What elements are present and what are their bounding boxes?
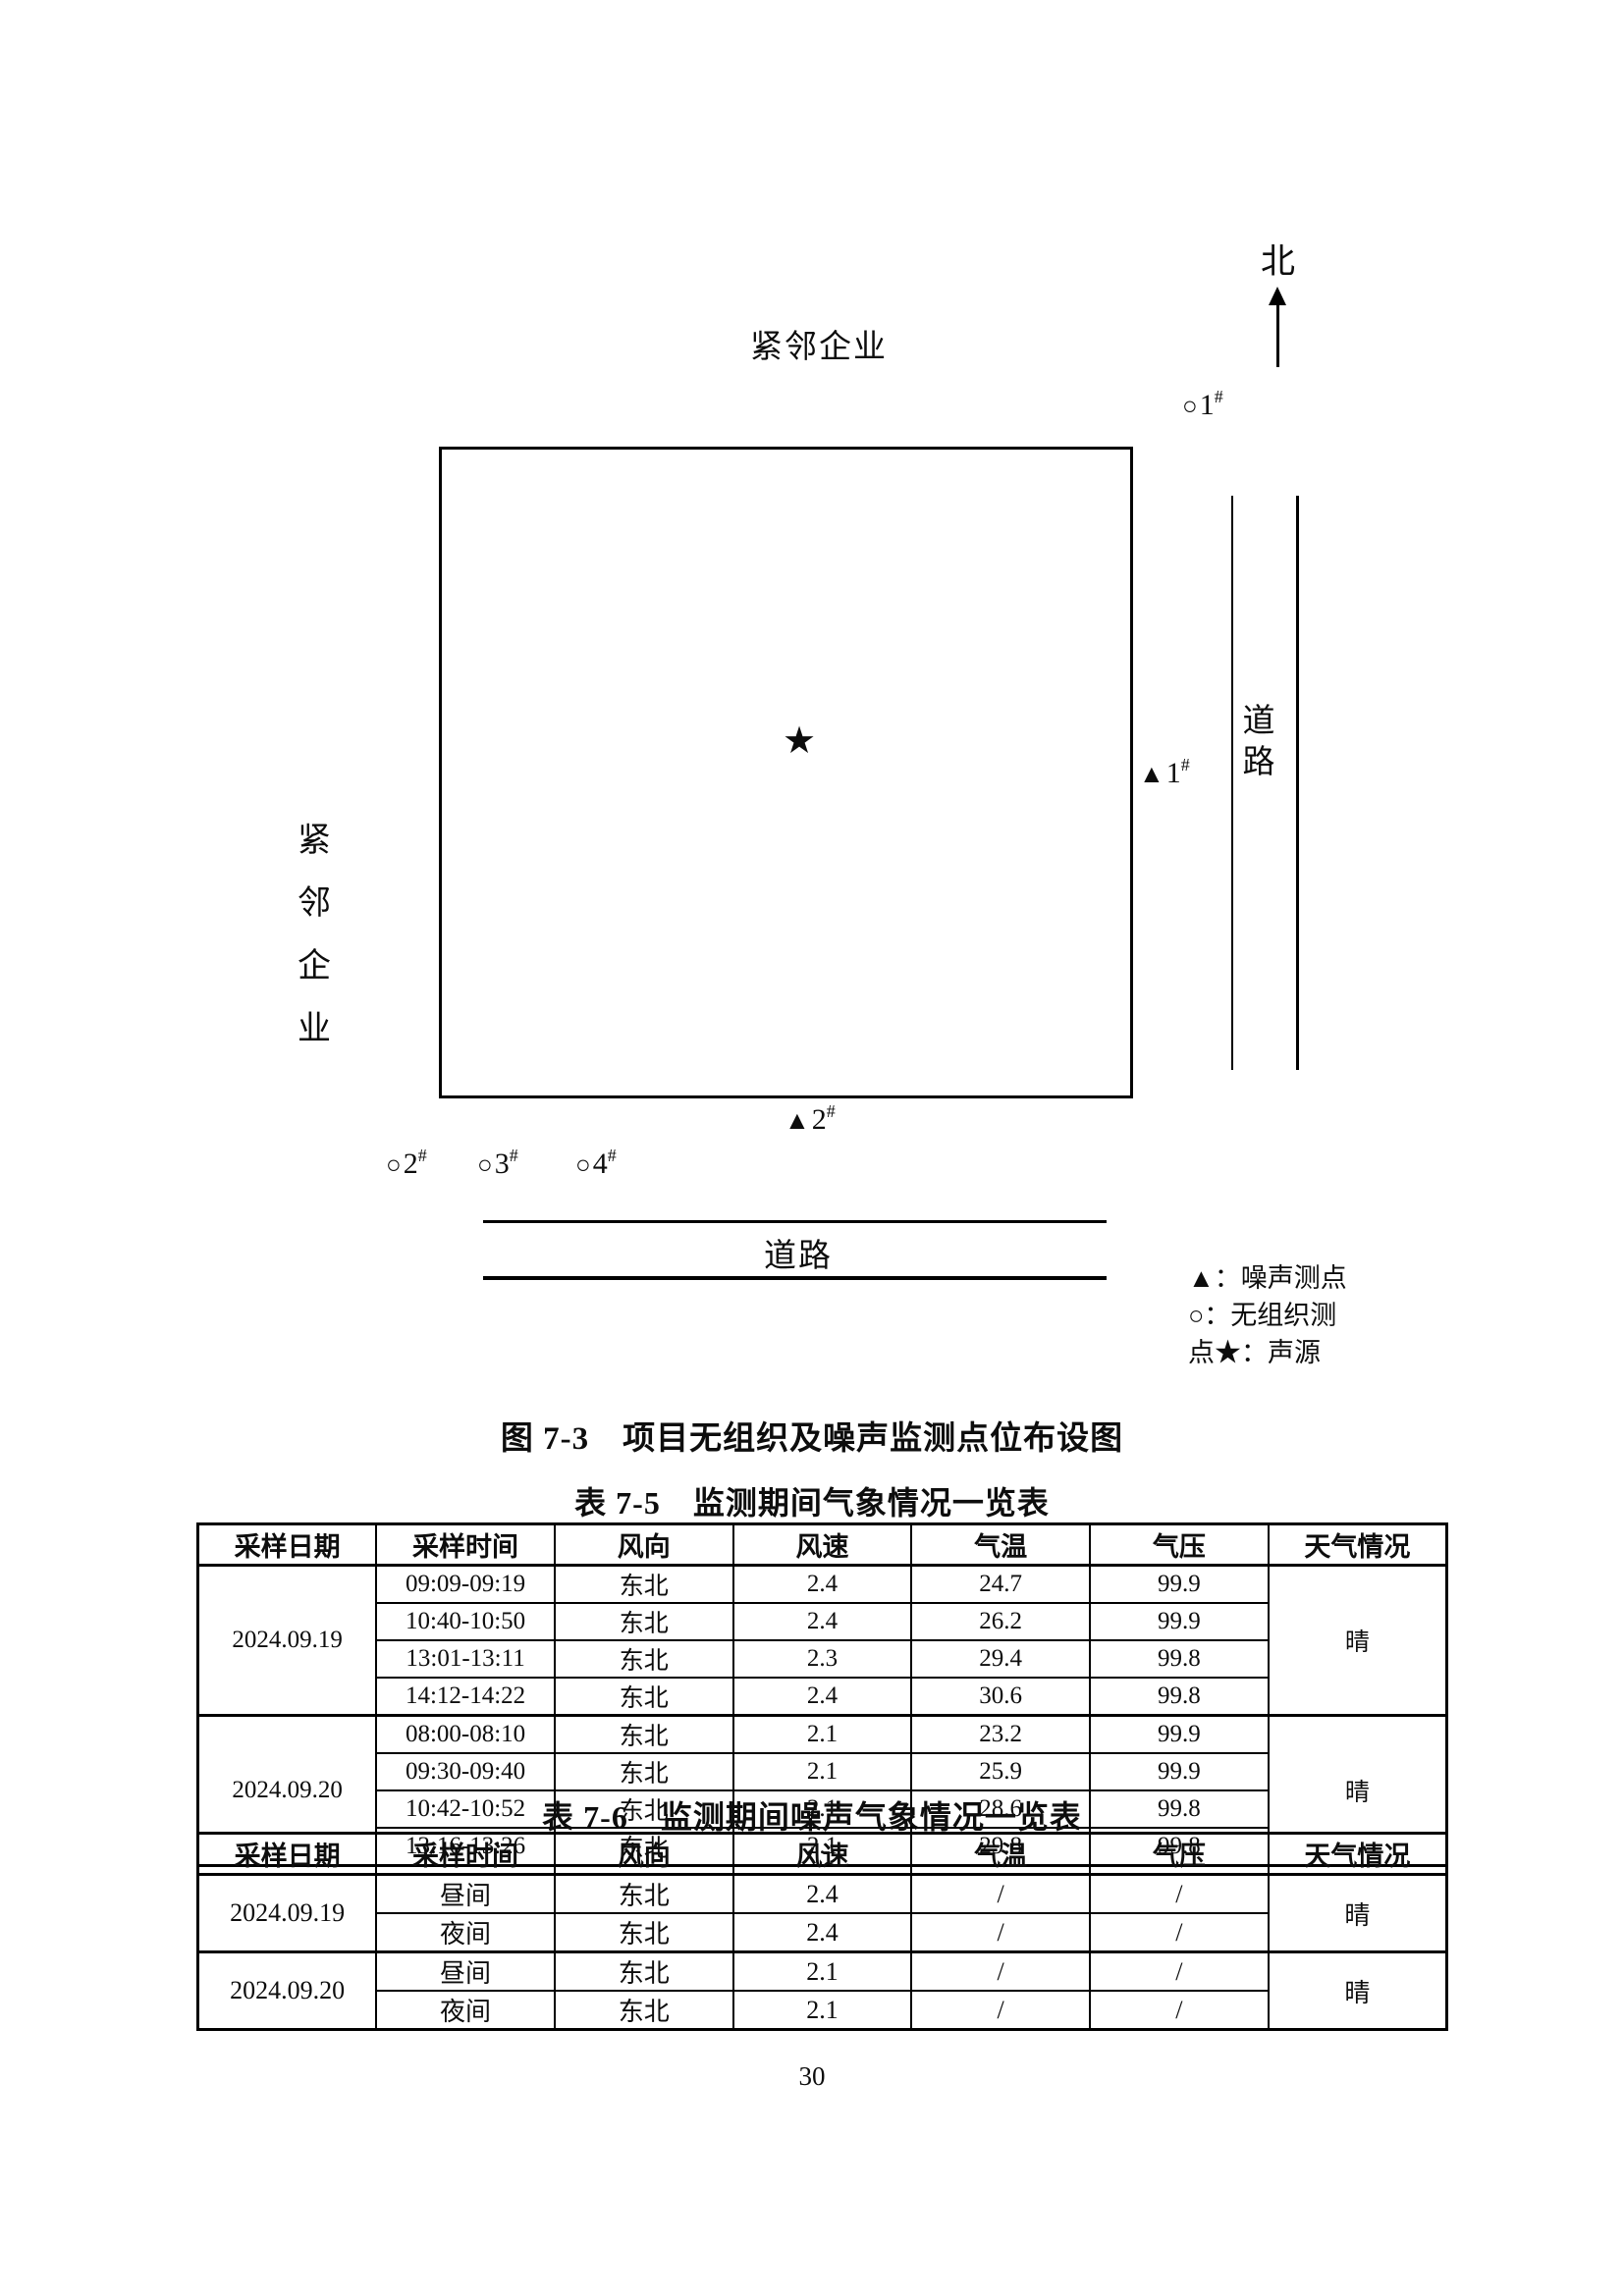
header-cell: 气压 — [1090, 1834, 1269, 1875]
table-cell: 东北 — [555, 1678, 733, 1716]
date-cell: 2024.09.20 — [198, 1952, 377, 2030]
table-cell: / — [1090, 1952, 1269, 1992]
table-cell: 10:40-10:50 — [376, 1603, 555, 1640]
table-row: 14:12-14:22东北2.430.699.8 — [198, 1678, 1447, 1716]
header-cell: 采样时间 — [376, 1524, 555, 1566]
circle-icon: ○ — [575, 1150, 591, 1179]
legend-unorganized-point: ○：无组织测 — [1188, 1297, 1347, 1334]
table-cell: 东北 — [555, 1716, 733, 1754]
table-cell: 东北 — [555, 1913, 733, 1952]
right-road-line-1 — [1231, 496, 1233, 1070]
table-cell: / — [1090, 1913, 1269, 1952]
table-row: 2024.09.20昼间东北2.1//晴 — [198, 1952, 1447, 1992]
table-row: 13:01-13:11东北2.329.499.8 — [198, 1640, 1447, 1678]
bottom-road-line-2 — [483, 1276, 1107, 1280]
header-cell: 风速 — [733, 1834, 912, 1875]
unorganized-point-1: ○1# — [1182, 390, 1223, 424]
circle-icon: ○ — [1182, 392, 1198, 420]
page-number: 30 — [0, 2061, 1624, 2092]
table-cell: 昼间 — [376, 1952, 555, 1992]
table-cell: 25.9 — [911, 1753, 1090, 1790]
header-cell: 气温 — [911, 1524, 1090, 1566]
table-row: 2024.09.19昼间东北2.4//晴 — [198, 1875, 1447, 1914]
weather-cell: 晴 — [1269, 1566, 1447, 1716]
circle-icon: ○ — [386, 1150, 402, 1179]
triangle-icon: ▲ — [1139, 760, 1164, 788]
header-cell: 采样时间 — [376, 1834, 555, 1875]
table-cell: 2.4 — [733, 1678, 912, 1716]
table-row: 2024.09.1909:09-09:19东北2.424.799.9晴 — [198, 1566, 1447, 1604]
table-cell: 昼间 — [376, 1875, 555, 1914]
noise-point-2: ▲2# — [785, 1104, 836, 1139]
header-cell: 风向 — [555, 1524, 733, 1566]
date-cell: 2024.09.19 — [198, 1875, 377, 1952]
table-cell: 09:30-09:40 — [376, 1753, 555, 1790]
marker-superscript: # — [608, 1146, 617, 1165]
table-row: 09:30-09:40东北2.125.999.9 — [198, 1753, 1447, 1790]
weather-cell: 晴 — [1269, 1875, 1447, 1952]
unorganized-point-4: ○4# — [575, 1148, 617, 1183]
marker-number: 2 — [810, 1103, 827, 1136]
marker-superscript: # — [418, 1146, 427, 1165]
triangle-icon: ▲ — [785, 1106, 810, 1135]
unorganized-point-2: ○2# — [386, 1148, 427, 1183]
table-cell: 26.2 — [911, 1603, 1090, 1640]
table-cell: 99.9 — [1090, 1716, 1269, 1754]
legend-source: 点★：声源 — [1188, 1334, 1347, 1371]
table-row: 夜间东北2.4// — [198, 1913, 1447, 1952]
table-cell: 14:12-14:22 — [376, 1678, 555, 1716]
north-arrow-shaft — [1276, 303, 1279, 367]
header-cell: 采样日期 — [198, 1834, 377, 1875]
right-road-line-2 — [1296, 496, 1299, 1070]
circle-icon: ○ — [477, 1150, 493, 1179]
document-page: 北 紧邻企业 ○1# ★ ▲1# 道路 紧邻企业 ▲2# ○2# ○3# ○4#… — [0, 0, 1624, 2296]
table-cell: 30.6 — [911, 1678, 1090, 1716]
marker-superscript: # — [827, 1101, 836, 1121]
table-cell: 2.4 — [733, 1566, 912, 1604]
table-cell: 2.3 — [733, 1640, 912, 1678]
table-cell: / — [911, 1875, 1090, 1914]
table-cell: 夜间 — [376, 1913, 555, 1952]
table-cell: 09:09-09:19 — [376, 1566, 555, 1604]
plant-boundary-box — [439, 447, 1133, 1098]
table-cell: 99.8 — [1090, 1678, 1269, 1716]
table-header-row: 采样日期采样时间风向风速气温气压天气情况 — [198, 1524, 1447, 1566]
table-cell: 东北 — [555, 1603, 733, 1640]
table-cell: 东北 — [555, 1640, 733, 1678]
top-neighbor-label: 紧邻企业 — [750, 320, 888, 367]
right-road-label: 道路 — [1239, 701, 1278, 783]
header-cell: 气压 — [1090, 1524, 1269, 1566]
table-cell: 东北 — [555, 1952, 733, 1992]
figure-caption: 图 7-3 项目无组织及噪声监测点位布设图 — [0, 1412, 1624, 1459]
table-row: 夜间东北2.1// — [198, 1991, 1447, 2030]
table-cell: 2.1 — [733, 1952, 912, 1992]
marker-number: 1 — [1198, 389, 1215, 421]
table-cell: / — [1090, 1991, 1269, 2030]
noise-source-icon: ★ — [783, 721, 816, 761]
header-cell: 采样日期 — [198, 1524, 377, 1566]
table-cell: 99.9 — [1090, 1753, 1269, 1790]
table-cell: 东北 — [555, 1875, 733, 1914]
bottom-road-line-1 — [483, 1220, 1107, 1223]
weather-cell: 晴 — [1269, 1952, 1447, 2030]
marker-superscript: # — [1181, 755, 1190, 774]
table-cell: 2.1 — [733, 1716, 912, 1754]
table-cell: 99.9 — [1090, 1566, 1269, 1604]
table-cell: / — [911, 1991, 1090, 2030]
diagram-legend: ▲：噪声测点 ○：无组织测 点★：声源 — [1188, 1259, 1347, 1371]
table-cell: 夜间 — [376, 1991, 555, 2030]
marker-number: 2 — [402, 1148, 418, 1180]
marker-number: 4 — [591, 1148, 608, 1180]
table-cell: 2.1 — [733, 1991, 912, 2030]
header-cell: 风向 — [555, 1834, 733, 1875]
table-cell: / — [911, 1913, 1090, 1952]
table-cell: 东北 — [555, 1566, 733, 1604]
table-cell: 99.9 — [1090, 1603, 1269, 1640]
marker-superscript: # — [510, 1146, 518, 1165]
marker-number: 3 — [493, 1148, 510, 1180]
table-cell: 08:00-08:10 — [376, 1716, 555, 1754]
table-cell: / — [1090, 1875, 1269, 1914]
left-neighbor-label: 紧邻企业 — [295, 810, 334, 1061]
noise-point-1: ▲1# — [1139, 758, 1190, 792]
table-header-row: 采样日期采样时间风向风速气温气压天气情况 — [198, 1834, 1447, 1875]
table-cell: 99.8 — [1090, 1640, 1269, 1678]
north-label: 北 — [1261, 234, 1295, 284]
marker-number: 1 — [1164, 757, 1181, 789]
table-7-5-title: 表 7-5 监测期间气象情况一览表 — [0, 1478, 1624, 1523]
table-cell: 13:01-13:11 — [376, 1640, 555, 1678]
table-cell: 29.4 — [911, 1640, 1090, 1678]
unorganized-point-3: ○3# — [477, 1148, 518, 1183]
table-cell: 24.7 — [911, 1566, 1090, 1604]
table-cell: 23.2 — [911, 1716, 1090, 1754]
table-7-6: 采样日期采样时间风向风速气温气压天气情况2024.09.19昼间东北2.4//晴… — [196, 1832, 1448, 2031]
bottom-road-label: 道路 — [764, 1229, 833, 1276]
table-cell: 2.1 — [733, 1753, 912, 1790]
header-cell: 气温 — [911, 1834, 1090, 1875]
table-cell: 东北 — [555, 1753, 733, 1790]
legend-noise-point: ▲：噪声测点 — [1188, 1259, 1347, 1297]
header-cell: 天气情况 — [1269, 1524, 1447, 1566]
table-row: 10:40-10:50东北2.426.299.9 — [198, 1603, 1447, 1640]
table-cell: 2.4 — [733, 1875, 912, 1914]
table-row: 2024.09.2008:00-08:10东北2.123.299.9晴 — [198, 1716, 1447, 1754]
header-cell: 天气情况 — [1269, 1834, 1447, 1875]
date-cell: 2024.09.19 — [198, 1566, 377, 1716]
table-cell: 2.4 — [733, 1603, 912, 1640]
header-cell: 风速 — [733, 1524, 912, 1566]
marker-superscript: # — [1215, 387, 1223, 406]
table-cell: 东北 — [555, 1991, 733, 2030]
table-cell: / — [911, 1952, 1090, 1992]
table-cell: 2.4 — [733, 1913, 912, 1952]
